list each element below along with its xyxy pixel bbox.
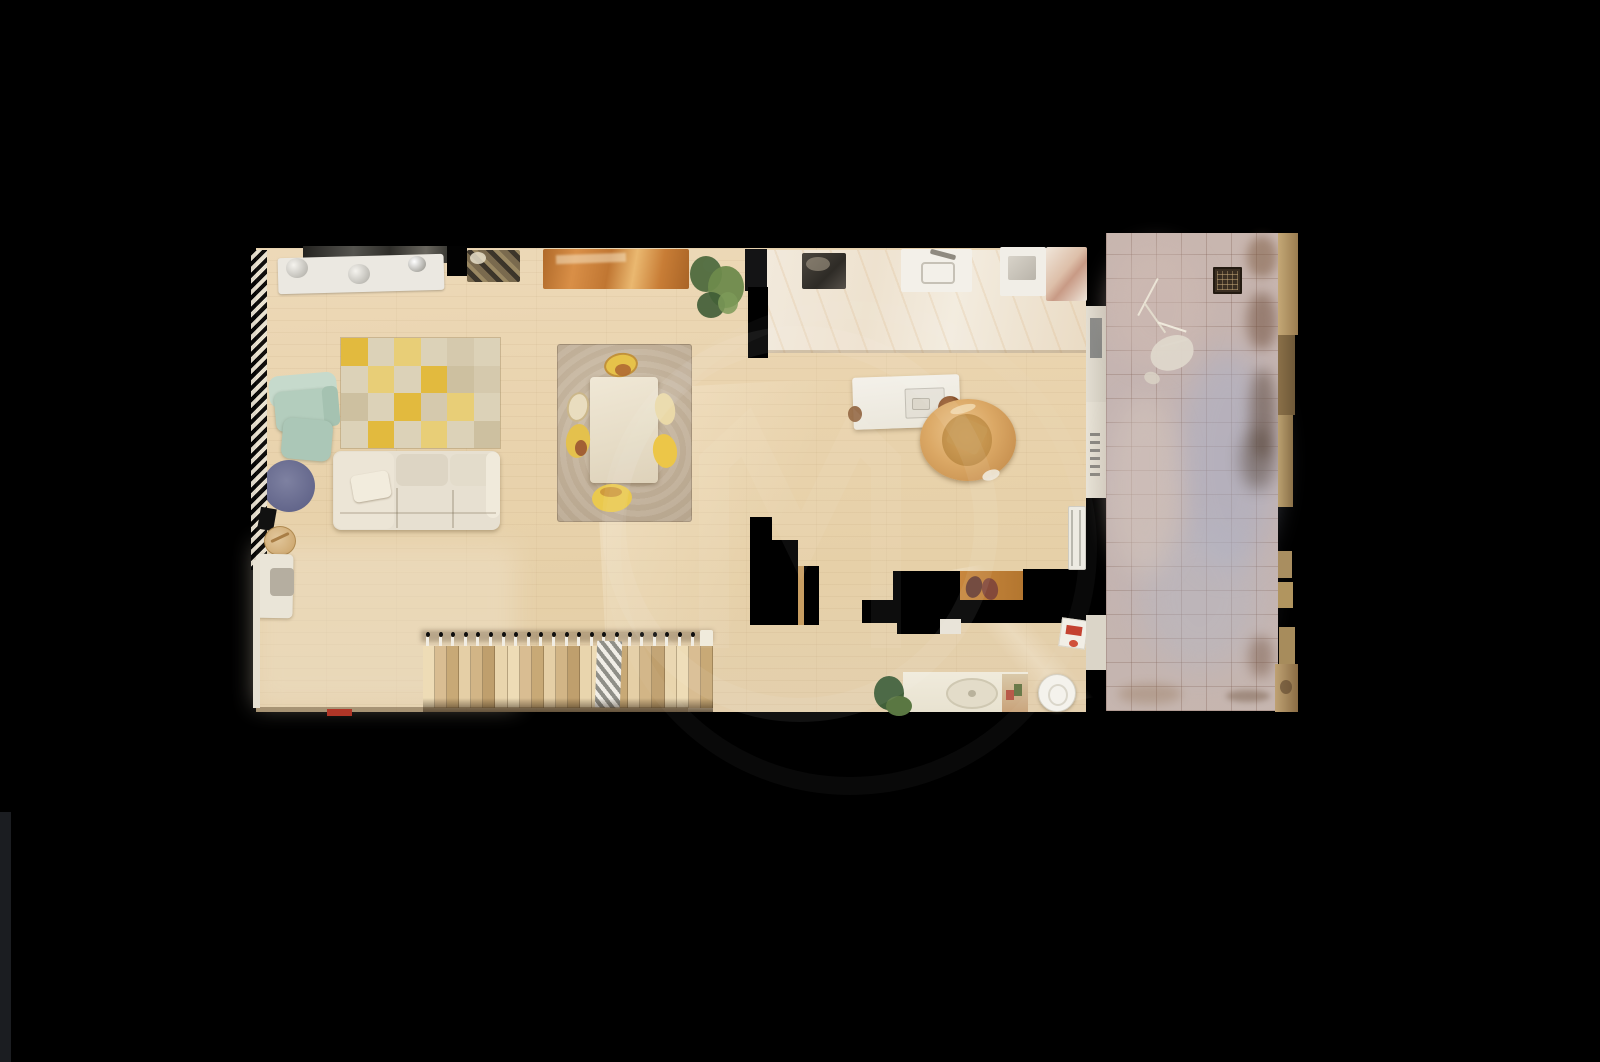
wall-void-b [750,540,798,625]
cooktop-glint [806,257,830,271]
marble-step-edge [756,350,1086,353]
checker-rug-cell [368,393,395,421]
lounge-chair-cushion [270,568,294,596]
sofa-seam-right [452,490,454,528]
terrace-bottom-stain [1118,684,1182,704]
bath-plant-b [886,696,912,716]
terrace-stain-c [1241,428,1275,490]
checker-rug-cell [341,338,368,366]
sink-basin [921,262,955,284]
door-sill [940,619,961,634]
terrace-wall-seg-3 [1278,415,1293,507]
terrace-wall-seg-2 [1278,335,1295,415]
round-blue-rug [263,460,315,512]
terrace-door-glass [1090,318,1102,358]
mint-ottoman [280,417,333,462]
plant-foliage-d [718,292,738,314]
terrace-bottom-dots [1226,690,1270,702]
checker-rug-cell [421,338,448,366]
terrace-wall-seg-5 [1278,582,1293,608]
kitchen-dark-gap [745,249,767,291]
terrace-stain-d [1249,636,1273,678]
appliance-detail [1008,256,1036,280]
sofa-front-seam [340,512,496,514]
checker-rug [340,337,501,449]
red-step-object [327,709,352,716]
bath-item-green [1014,684,1022,696]
wall-void-right-block [1023,569,1087,602]
checker-rug-cell [368,421,395,449]
hall-door-frame [1086,615,1106,670]
checker-rug-cell [394,366,421,394]
console-object-vase [408,256,426,272]
radiator-line-b [1079,510,1081,566]
checker-rug-cell [341,393,368,421]
checker-rug-cell [421,366,448,394]
dining-chair-top-accent [615,364,631,376]
checker-rug-cell [447,338,474,366]
sofa-seam-left [396,488,398,528]
dining-chair-left-accent [575,440,587,456]
terrace-wall-spot [1280,680,1292,694]
wall-void-closet [893,571,961,602]
bath-item-red [1006,690,1014,700]
left-wall-sliver [253,560,260,708]
viewer-canvas[interactable] [0,0,1600,1062]
checker-rug-cell [368,338,395,366]
checker-rug-cell [394,393,421,421]
sofa-back-cushion-left [396,454,448,486]
checker-rug-cell [421,393,448,421]
checker-rug-cell [341,366,368,394]
bath-basin-drain [968,690,976,697]
side-panel-edge[interactable] [0,812,11,1062]
terrace-door-specks [1090,430,1100,476]
checker-rug-cell [368,366,395,394]
terrace-wall-seg-1 [1278,233,1298,335]
basket-pouf [264,526,296,556]
console-object-bowl [286,258,308,278]
plan-bottom-trim [256,707,688,712]
radiator-line-a [1071,510,1073,566]
terrace-stain-top [1247,236,1277,278]
wall-void-bar-low [897,621,941,634]
checker-rug-cell [447,393,474,421]
console-object-hat [348,264,370,284]
toilet-seat [1048,684,1068,706]
checker-rug-cell [474,421,501,449]
dining-chair-bottom-accent [600,487,622,497]
checker-rug-cell [474,366,501,394]
terrace-wall-seg-6 [1279,627,1295,664]
terrace-wall-seg-4 [1278,551,1292,578]
sofa-armrest-right [486,452,500,518]
wall-void-c [804,566,819,625]
wall-void-bar [862,600,1088,623]
drain-grate-grid [1217,271,1238,290]
island-sink-basin [912,398,930,410]
checker-rug-cell [447,366,474,394]
wall-notch [447,246,467,276]
checker-rug-cell [474,338,501,366]
island-left-object [848,406,862,422]
cabinet-glint [470,252,486,264]
wall-void-slot [748,287,768,358]
checker-rug-cell [341,421,368,449]
terrace-light-patch [1108,396,1182,576]
checker-rug-cell [474,393,501,421]
checker-rug-cell [394,338,421,366]
dining-table [590,377,658,483]
checker-rug-cell [394,421,421,449]
checker-rug-cell [421,421,448,449]
checker-rug-cell [447,421,474,449]
terrace-stain-a [1247,292,1277,350]
corner-appliance [1046,247,1087,301]
